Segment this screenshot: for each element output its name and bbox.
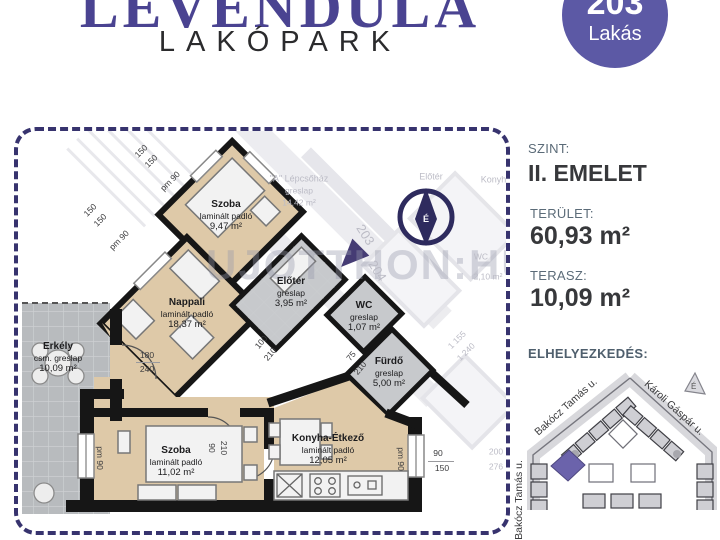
area-label: TERÜLET: [530, 206, 594, 221]
faded-label: Előtér [419, 171, 443, 182]
faded-label: "A" Lépcsőház [270, 173, 328, 184]
faded-label: WC [474, 252, 488, 263]
room-label-szoba2: Szoba laminált padló 11,02 m² [150, 445, 202, 479]
faded-label: 2,10 m² [474, 272, 503, 283]
dim-label: 210 [219, 441, 229, 455]
floorplan-drawing [18, 131, 506, 531]
terrace-label: TERASZ: [530, 268, 587, 283]
faded-label: 14,42 m² [282, 198, 316, 209]
faded-dim: 200 [489, 447, 503, 458]
dim-label: 90 [433, 448, 442, 458]
room-label-szoba1: Szoba laminált padló 9,47 m² [200, 199, 252, 233]
dim-label: pm 90 [95, 446, 105, 470]
street-label: Bakócz Tamás u. [513, 460, 525, 540]
area-value: 60,93 m² [530, 224, 630, 249]
room-label-wc: WC greslap 1,07 m² [348, 300, 380, 334]
badge-label: Lakás [562, 24, 668, 44]
room-label-nappali: Nappali laminált padló 18,37 m² [161, 297, 213, 331]
room-label-eloter: Előtér greslap 3,95 m² [275, 276, 307, 310]
floorplan-panel: UJOTTHON:HU "A" Lépcsőház greslap 14,42 … [14, 127, 510, 535]
faded-dim: 276 [489, 462, 503, 473]
dim-line [428, 461, 454, 462]
compass-north-letter: É [423, 214, 429, 224]
room-label-erkely: Erkély csm. greslap 10,09 m² [34, 341, 82, 375]
dim-label: pm 90 [396, 447, 406, 471]
dim-label: 150 [435, 463, 449, 473]
faded-label: greslap [285, 186, 313, 197]
location-label: ELHELYEZKEDÉS: [528, 346, 648, 361]
floor-label: SZINT: [528, 141, 570, 156]
dim-line [136, 362, 160, 363]
apartment-count-badge: 203 Lakás [562, 0, 668, 68]
badge-number: 203 [562, 0, 668, 20]
faded-label: Konyha [481, 174, 510, 185]
watermark: UJOTTHON:HU [206, 241, 510, 289]
floor-value: II. EMELET [528, 162, 647, 185]
dim-label: 180 [140, 350, 154, 360]
map-compass-icon: É [685, 373, 705, 394]
project-subtitle: LAKÓPARK [0, 26, 560, 59]
dim-label: 90 [207, 443, 217, 452]
svg-text:É: É [691, 382, 696, 391]
location-map: É [527, 368, 717, 510]
dim-label: 240 [140, 364, 154, 374]
terrace-value: 10,09 m² [530, 286, 630, 311]
room-label-furdo: Fürdő greslap 5,00 m² [373, 356, 405, 390]
room-label-konyha: Konyha-Étkező laminált padló 12,05 m² [292, 433, 364, 467]
